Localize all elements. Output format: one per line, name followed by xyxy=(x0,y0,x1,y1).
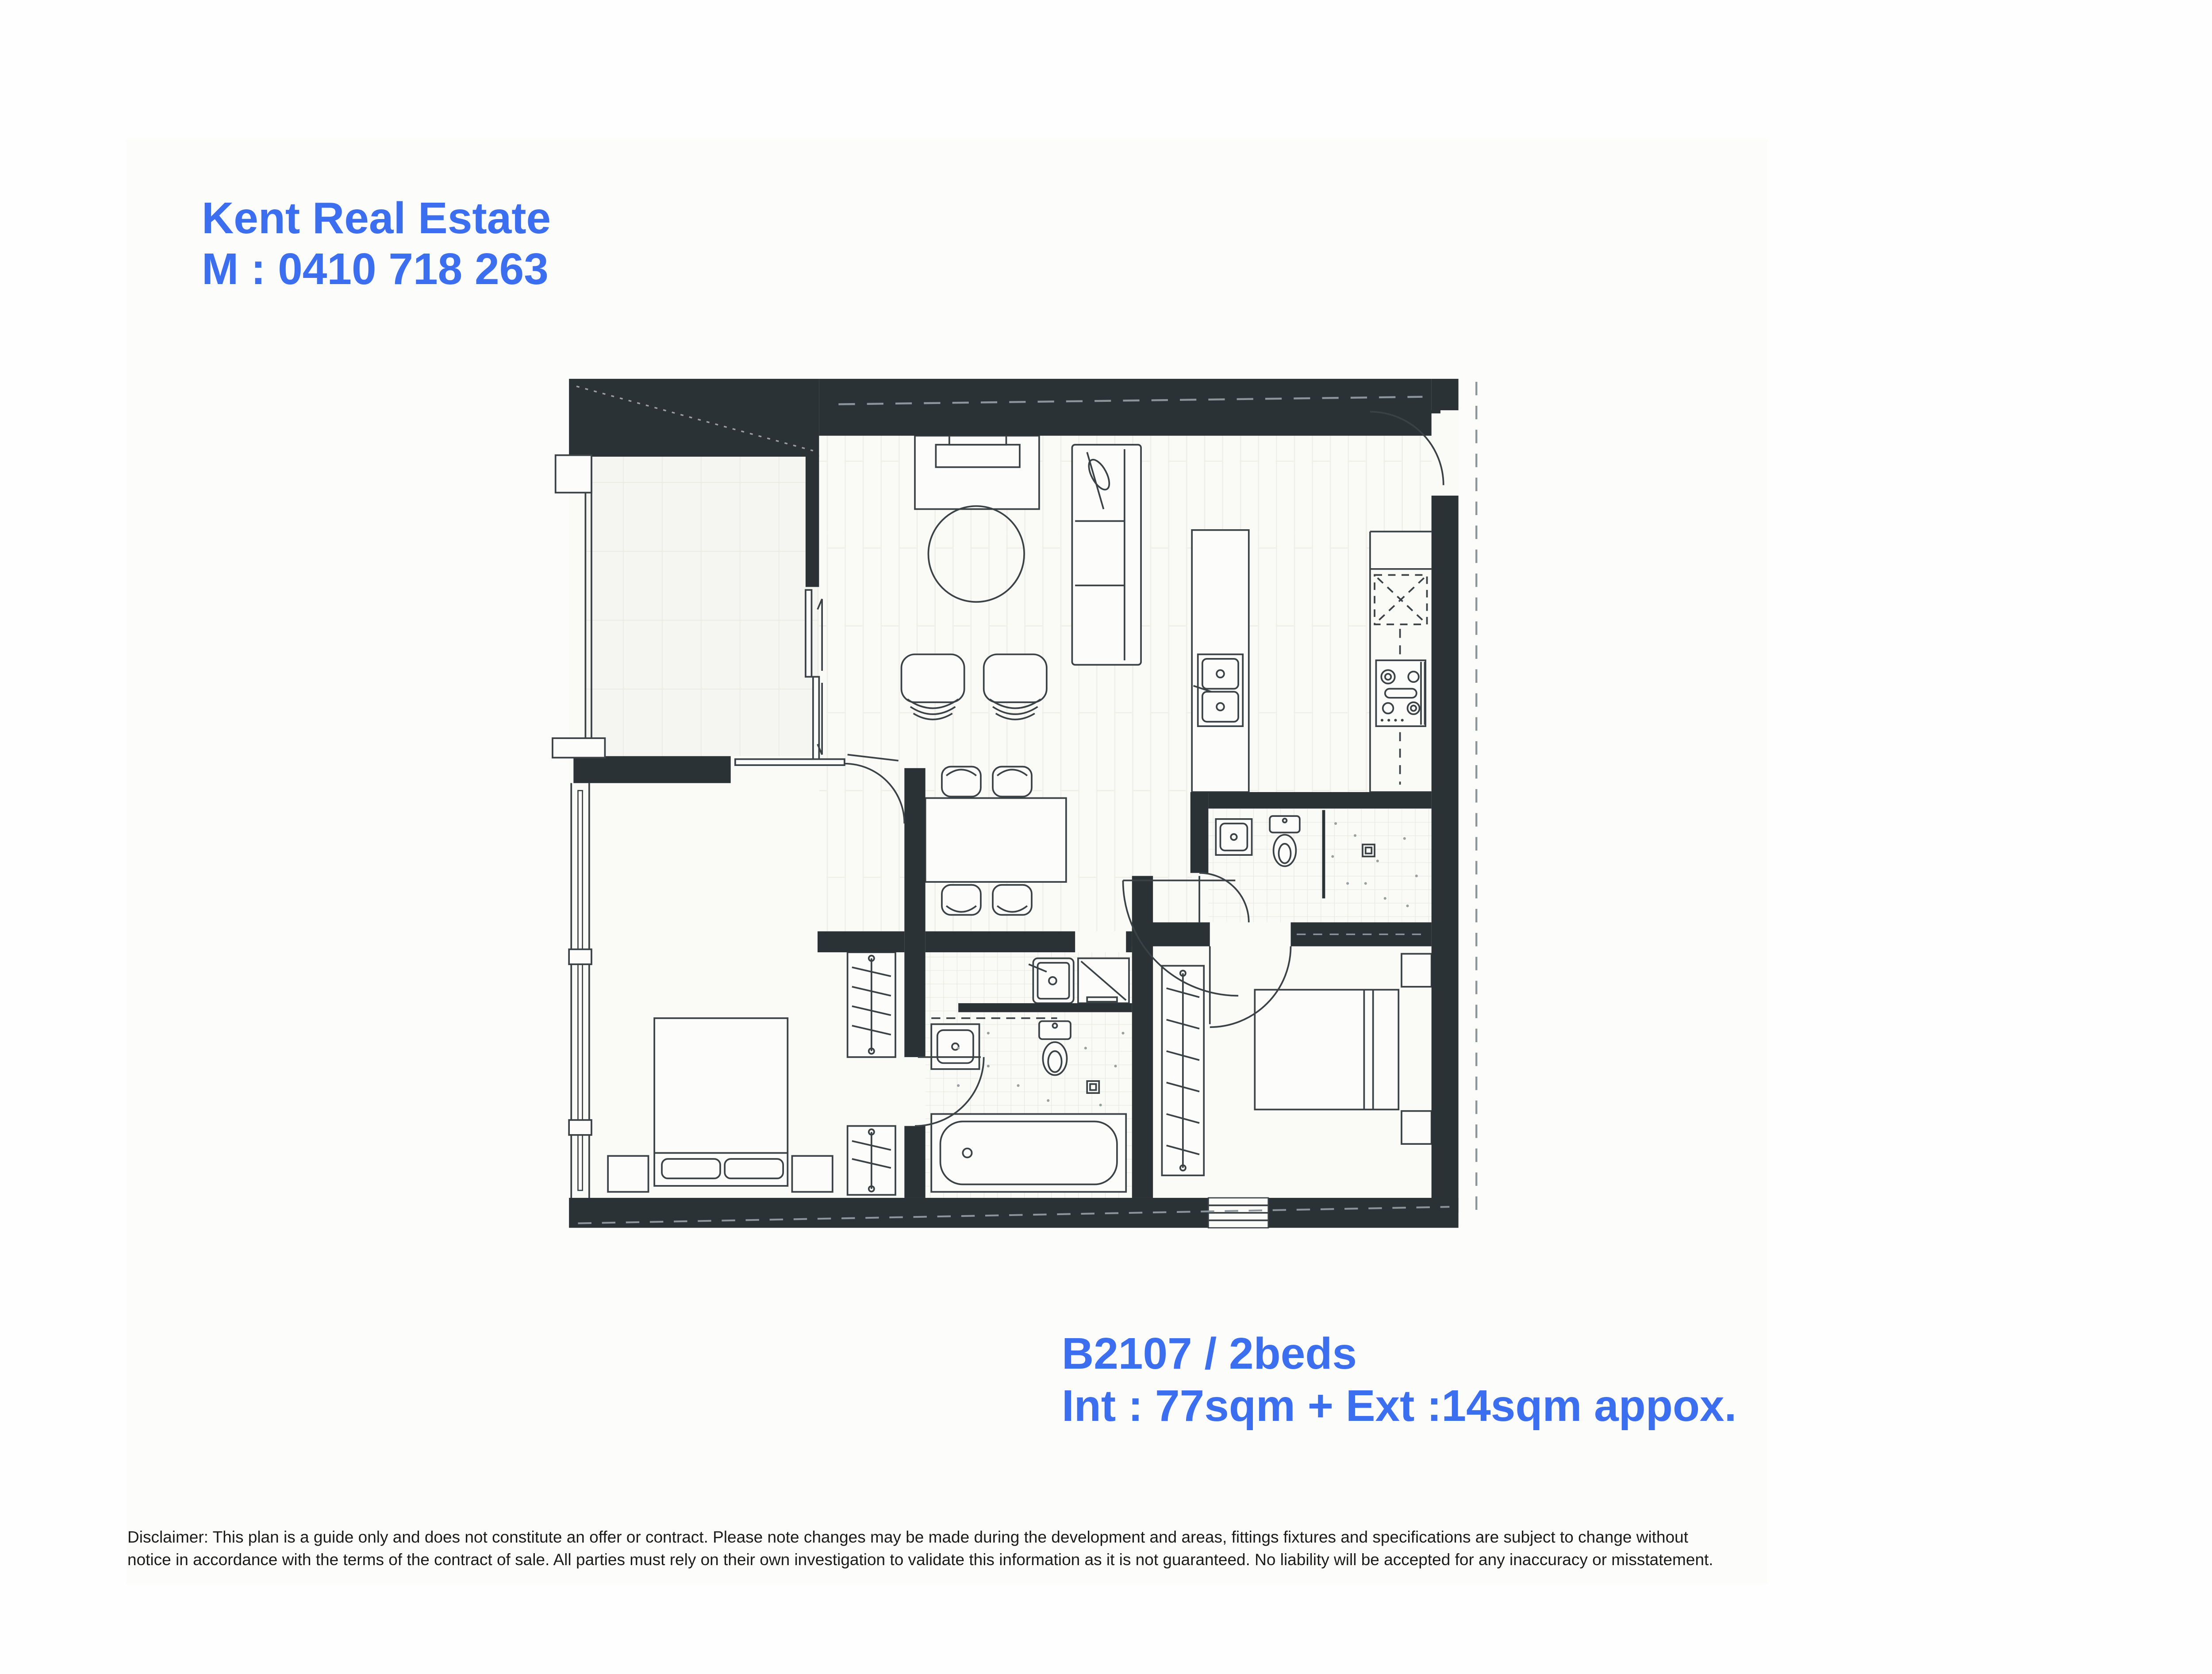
wall-balcony-top xyxy=(569,379,819,457)
laundry-tub xyxy=(1029,958,1074,1004)
wall-top xyxy=(819,379,1431,436)
area-label: Int : 77sqm + Ext :14sqm appox. xyxy=(1062,1380,1736,1432)
kitchen-floor xyxy=(1249,531,1370,792)
bedroom2-window xyxy=(1208,1198,1268,1228)
wall-bed2-top-a xyxy=(1132,922,1210,946)
vanity-ensuite xyxy=(1216,819,1252,855)
pier xyxy=(553,738,605,758)
tv-unit xyxy=(915,436,1039,509)
balcony-tiles xyxy=(585,457,819,756)
bedside-table xyxy=(1402,954,1432,986)
wall-bed1-right-b xyxy=(904,1126,925,1198)
gas-cooktop xyxy=(1376,660,1425,726)
sofa xyxy=(1072,445,1141,665)
wall-right xyxy=(1432,496,1459,1213)
wall-balcony-bottom xyxy=(573,756,730,783)
disclaimer: Disclaimer: This plan is a guide only an… xyxy=(127,1526,1773,1571)
dining-table xyxy=(926,798,1066,882)
wardrobe-bed1-a xyxy=(848,952,895,1057)
bed-2 xyxy=(1255,990,1398,1110)
mobile-number: M : 0410 718 263 xyxy=(202,244,551,295)
wall-bottom xyxy=(569,1198,1458,1228)
wardrobe-bed2 xyxy=(1162,966,1204,1176)
bedside-table xyxy=(608,1156,648,1192)
wall-laundry-bottom xyxy=(958,1003,1132,1012)
wall-laundry-top-a xyxy=(926,931,1075,952)
agent-header: Kent Real Estate M : 0410 718 263 xyxy=(202,193,551,295)
unit-info: B2107 / 2beds Int : 77sqm + Ext :14sqm a… xyxy=(1062,1328,1736,1432)
bedside-table xyxy=(792,1156,832,1192)
unit-label: B2107 / 2beds xyxy=(1062,1328,1736,1380)
wall-ensuite-top xyxy=(1208,792,1431,808)
wall-ensuite-left xyxy=(1190,792,1209,873)
bathtub xyxy=(931,1114,1126,1192)
bed-1 xyxy=(654,1018,787,1186)
page: Kent Real Estate M : 0410 718 263 B2107 … xyxy=(0,0,2212,1674)
wall-bed1-right-a xyxy=(904,768,925,1057)
wall-balcony-right xyxy=(806,455,819,587)
disclaimer-line-1: Disclaimer: This plan is a guide only an… xyxy=(127,1526,1773,1548)
disclaimer-line-2: notice in accordance with the terms of t… xyxy=(127,1548,1773,1571)
wall-laundry-top-b xyxy=(1126,931,1132,952)
dryer xyxy=(1078,958,1129,1004)
bedside-table xyxy=(1402,1111,1432,1144)
company-name: Kent Real Estate xyxy=(202,193,551,244)
wall-bed2-top-b xyxy=(1291,922,1432,946)
wardrobe-bed1-b xyxy=(848,1126,895,1195)
wall-wardrobe-top xyxy=(818,931,904,952)
kitchen-island xyxy=(1192,530,1249,792)
pier xyxy=(556,455,591,493)
vanity-bathroom xyxy=(931,1024,979,1069)
wall-entry-corner xyxy=(1432,379,1459,410)
